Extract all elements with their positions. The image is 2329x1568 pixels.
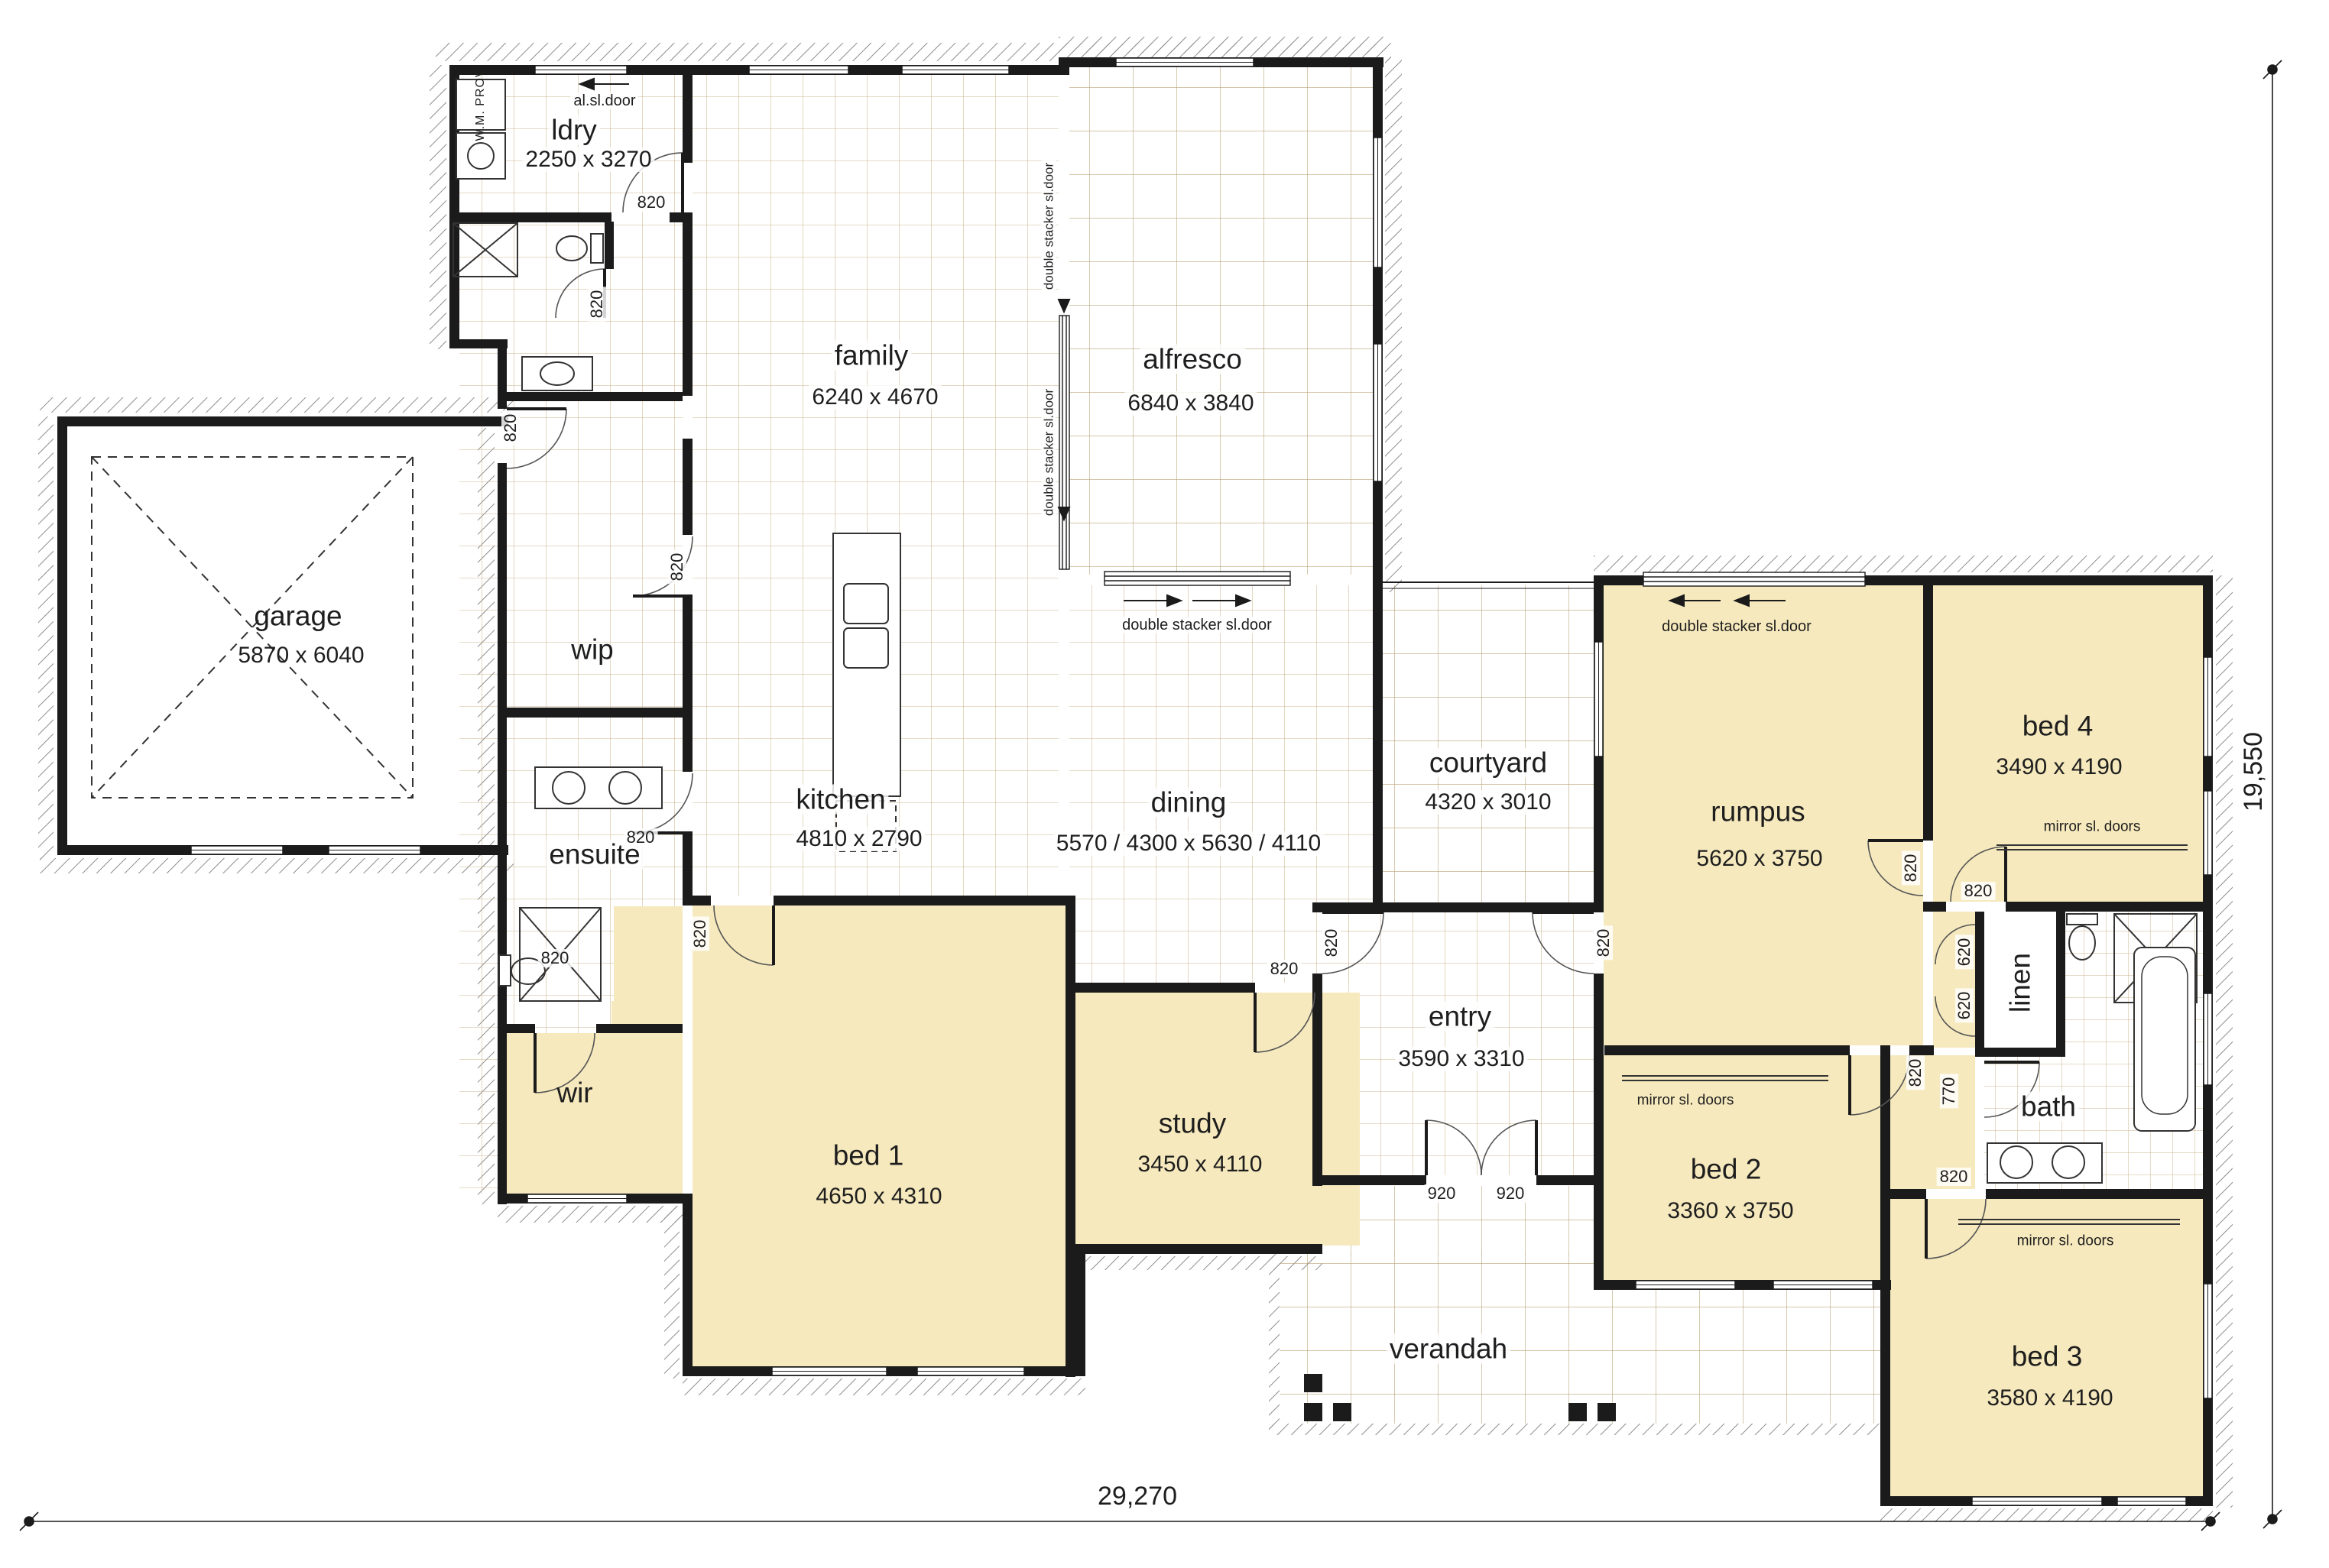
ensuite-toilet-cistern	[499, 955, 511, 986]
door-width-label: 820	[1267, 960, 1302, 978]
floor-plan-canvas: ldry 2250 x 3270 family 6240 x 4670 alfr…	[0, 0, 2329, 1568]
door-width-label: 820	[668, 550, 686, 585]
door-width-label: 820	[691, 917, 709, 951]
room-label-rumpus: rumpus	[1711, 798, 1805, 826]
annotation-double-stacker-door: double stacker sl.door	[1119, 617, 1275, 633]
room-label-study: study	[1159, 1110, 1226, 1138]
room-dims-ldry: 2250 x 3270	[522, 147, 654, 172]
door-width-label: 770	[1940, 1074, 1958, 1109]
room-label-kitchen: kitchen	[793, 785, 888, 815]
door-width-label: 920	[1425, 1184, 1459, 1203]
door-width-label: 820	[538, 949, 573, 967]
room-dims-bed1: 4650 x 4310	[816, 1185, 942, 1208]
room-label-alfresco: alfresco	[1140, 345, 1245, 374]
door-width-label: 820	[588, 287, 606, 322]
room-label-bed3: bed 3	[2012, 1343, 2083, 1371]
dimension-width-label: 29,270	[1098, 1483, 1177, 1509]
room-label-ldry: ldry	[548, 115, 600, 145]
room-label-bed4: bed 4	[2022, 712, 2094, 740]
room-label-courtyard: courtyard	[1426, 748, 1550, 778]
room-label-bath: bath	[2018, 1092, 2079, 1122]
kitchen-island	[833, 533, 900, 796]
room-dims-study: 3450 x 4110	[1138, 1153, 1263, 1176]
garage-car-space	[92, 457, 413, 798]
floor-layer	[459, 67, 2203, 1496]
room-dims-courtyard: 4320 x 3010	[1422, 790, 1554, 815]
room-dims-alfresco: 6840 x 3840	[1124, 391, 1257, 416]
floor-alfresco	[1069, 67, 1373, 575]
door-width-label: 820	[1906, 1056, 1925, 1090]
dimension-height-label: 19,550	[2240, 732, 2266, 812]
room-dims-rumpus: 5620 x 3750	[1696, 847, 1822, 870]
floor-plan-drawing	[0, 0, 2329, 1568]
annotation-mirror-doors: mirror sl. doors	[2044, 820, 2141, 834]
room-dims-kitchen: 4810 x 2790	[793, 827, 925, 851]
bathtub	[2134, 948, 2195, 1131]
room-label-garage: garage	[254, 602, 342, 630]
room-dims-entry: 3590 x 3310	[1395, 1047, 1527, 1071]
room-label-dining: dining	[1148, 788, 1230, 818]
floor-entry	[1322, 912, 1594, 1175]
door-width-label: 920	[1494, 1184, 1528, 1203]
annotation-double-stacker-door: double stacker sl.door	[1662, 619, 1812, 634]
annotation-al-sl-door: al.sl.door	[570, 92, 638, 109]
stacker-arrow-down-1	[1059, 300, 1069, 312]
annotation-double-stacker-door: double stacker sl.door	[1042, 160, 1056, 293]
annotation-mirror-doors: mirror sl. doors	[1637, 1093, 1734, 1108]
room-label-entry: entry	[1426, 1002, 1494, 1032]
room-label-bed2: bed 2	[1691, 1155, 1762, 1184]
room-label-wir: wir	[556, 1079, 592, 1107]
door-width-label: 620	[1955, 935, 1974, 970]
ensuite-vanity	[535, 767, 662, 808]
door-width-label: 820	[1594, 926, 1613, 961]
room-dims-family: 6240 x 4670	[809, 385, 941, 410]
floor-courtyard	[1383, 585, 1594, 902]
floor-verandah-right	[1594, 1290, 1891, 1424]
room-label-verandah: verandah	[1387, 1334, 1510, 1364]
annotation-double-stacker-door: double stacker sl.door	[1042, 386, 1056, 519]
door-width-label: 820	[624, 828, 658, 847]
powder-toilet-cistern	[591, 234, 603, 263]
door-width-label: 820	[1902, 851, 1920, 886]
door-width-label: 820	[634, 193, 669, 212]
door-width-label: 820	[501, 411, 520, 445]
room-dims-bed3: 3580 x 4190	[1987, 1387, 2113, 1410]
door-width-label: 820	[1937, 1168, 1971, 1186]
room-label-bed1: bed 1	[833, 1142, 904, 1170]
door-width-label: 620	[1955, 989, 1974, 1023]
door-width-label: 820	[1322, 926, 1341, 961]
annotation-wm-prov: W.M. PROV	[475, 68, 487, 141]
room-dims-garage: 5870 x 6040	[238, 644, 364, 667]
door-width-label: 820	[1961, 882, 1996, 900]
room-dims-bed2: 3360 x 3750	[1667, 1200, 1793, 1223]
room-label-linen: linen	[2006, 953, 2035, 1012]
room-label-wip: wip	[571, 636, 614, 664]
room-label-family: family	[832, 341, 912, 371]
annotation-mirror-doors: mirror sl. doors	[2017, 1234, 2114, 1249]
room-dims-bed4: 3490 x 4190	[1996, 756, 2122, 779]
room-dims-dining: 5570 / 4300 x 5630 / 4110	[1053, 831, 1324, 856]
bath-toilet-cistern	[2067, 914, 2097, 925]
